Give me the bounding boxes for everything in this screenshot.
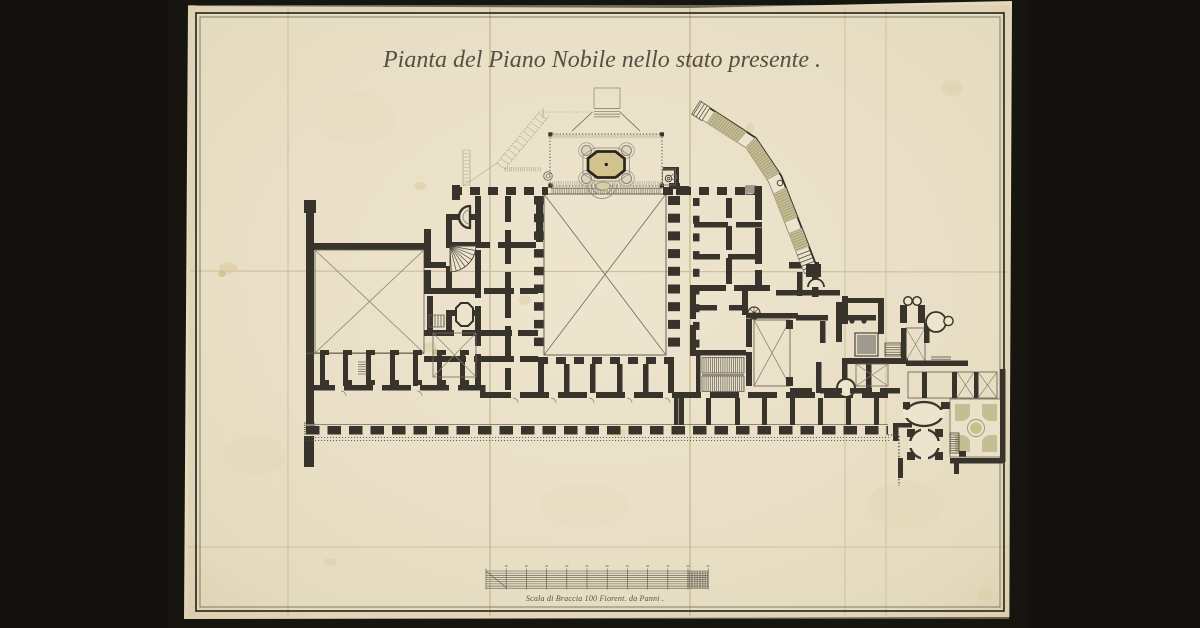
svg-text:Pianta del Piano Nobile nello: Pianta del Piano Nobile nello stato pres…: [382, 46, 821, 73]
svg-text:Scala di Braccia 100 Fiorent.: Scala di Braccia 100 Fiorent. da Panni .: [526, 594, 664, 603]
